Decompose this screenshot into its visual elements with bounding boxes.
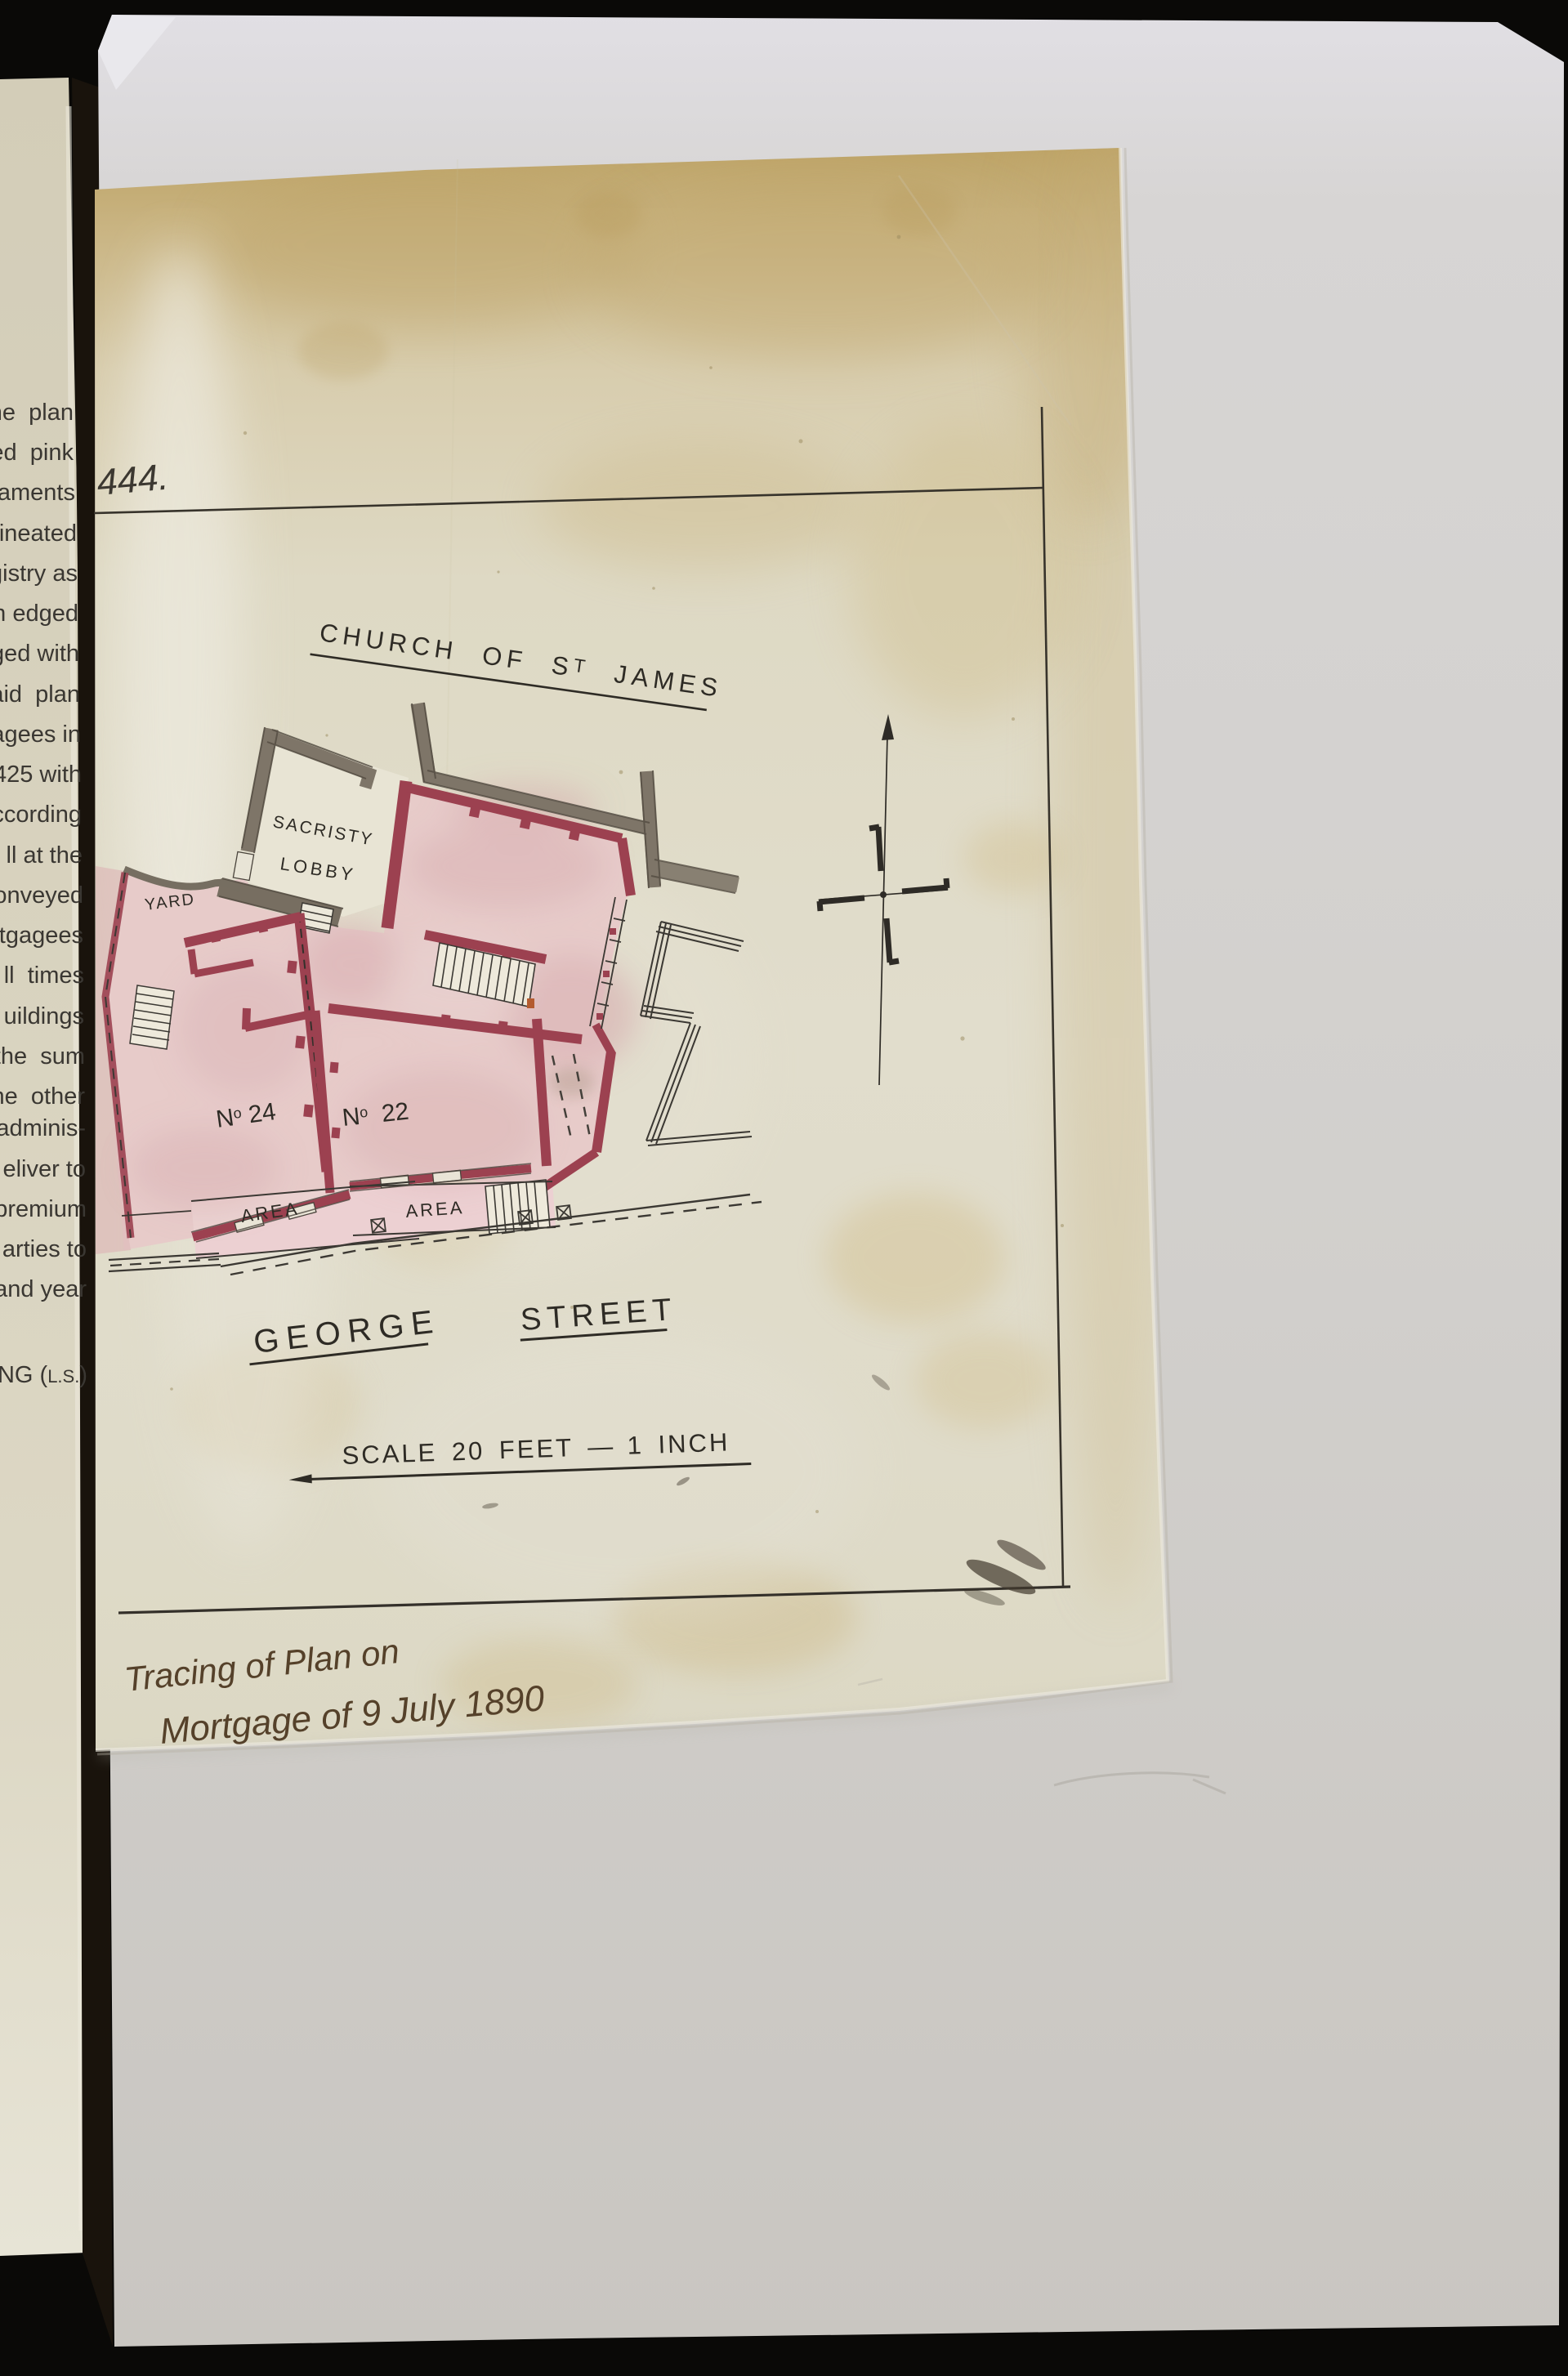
svg-text:arties to: arties to	[2, 1236, 87, 1262]
svg-text:the sum: the sum	[0, 1043, 85, 1070]
svg-text:aid plan: aid plan	[0, 681, 80, 708]
svg-text:444.: 444.	[95, 456, 170, 503]
svg-text:ged with: ged with	[0, 641, 79, 667]
svg-text:NG (L.S.): NG (L.S.)	[0, 1362, 87, 1388]
svg-text:he plan: he plan	[0, 400, 74, 426]
svg-text:AREA: AREA	[405, 1197, 465, 1221]
svg-text:elineated: elineated	[0, 520, 77, 547]
svg-text:eliver to: eliver to	[2, 1156, 86, 1182]
svg-text:gagees in: gagees in	[0, 721, 81, 748]
svg-text:425 with: 425 with	[0, 761, 82, 788]
svg-text:ll at the: ll at the	[7, 842, 83, 869]
svg-text:uildings: uildings	[4, 1003, 84, 1029]
svg-text:ll times: ll times	[4, 962, 84, 989]
svg-text:on edged: on edged	[0, 601, 78, 627]
svg-text:gistry as: gistry as	[0, 561, 78, 587]
svg-text:ccording: ccording	[0, 802, 82, 828]
svg-text:ne other: ne other	[0, 1083, 85, 1110]
svg-text:premium: premium	[0, 1196, 87, 1222]
svg-text:itaments: itaments	[0, 480, 75, 506]
svg-text:adminis-: adminis-	[0, 1115, 86, 1141]
svg-text:conveyed: conveyed	[0, 882, 83, 909]
svg-text:and year: and year	[0, 1276, 87, 1302]
svg-text:rtgagees: rtgagees	[0, 922, 83, 949]
svg-text:red pink: red pink	[0, 440, 74, 466]
